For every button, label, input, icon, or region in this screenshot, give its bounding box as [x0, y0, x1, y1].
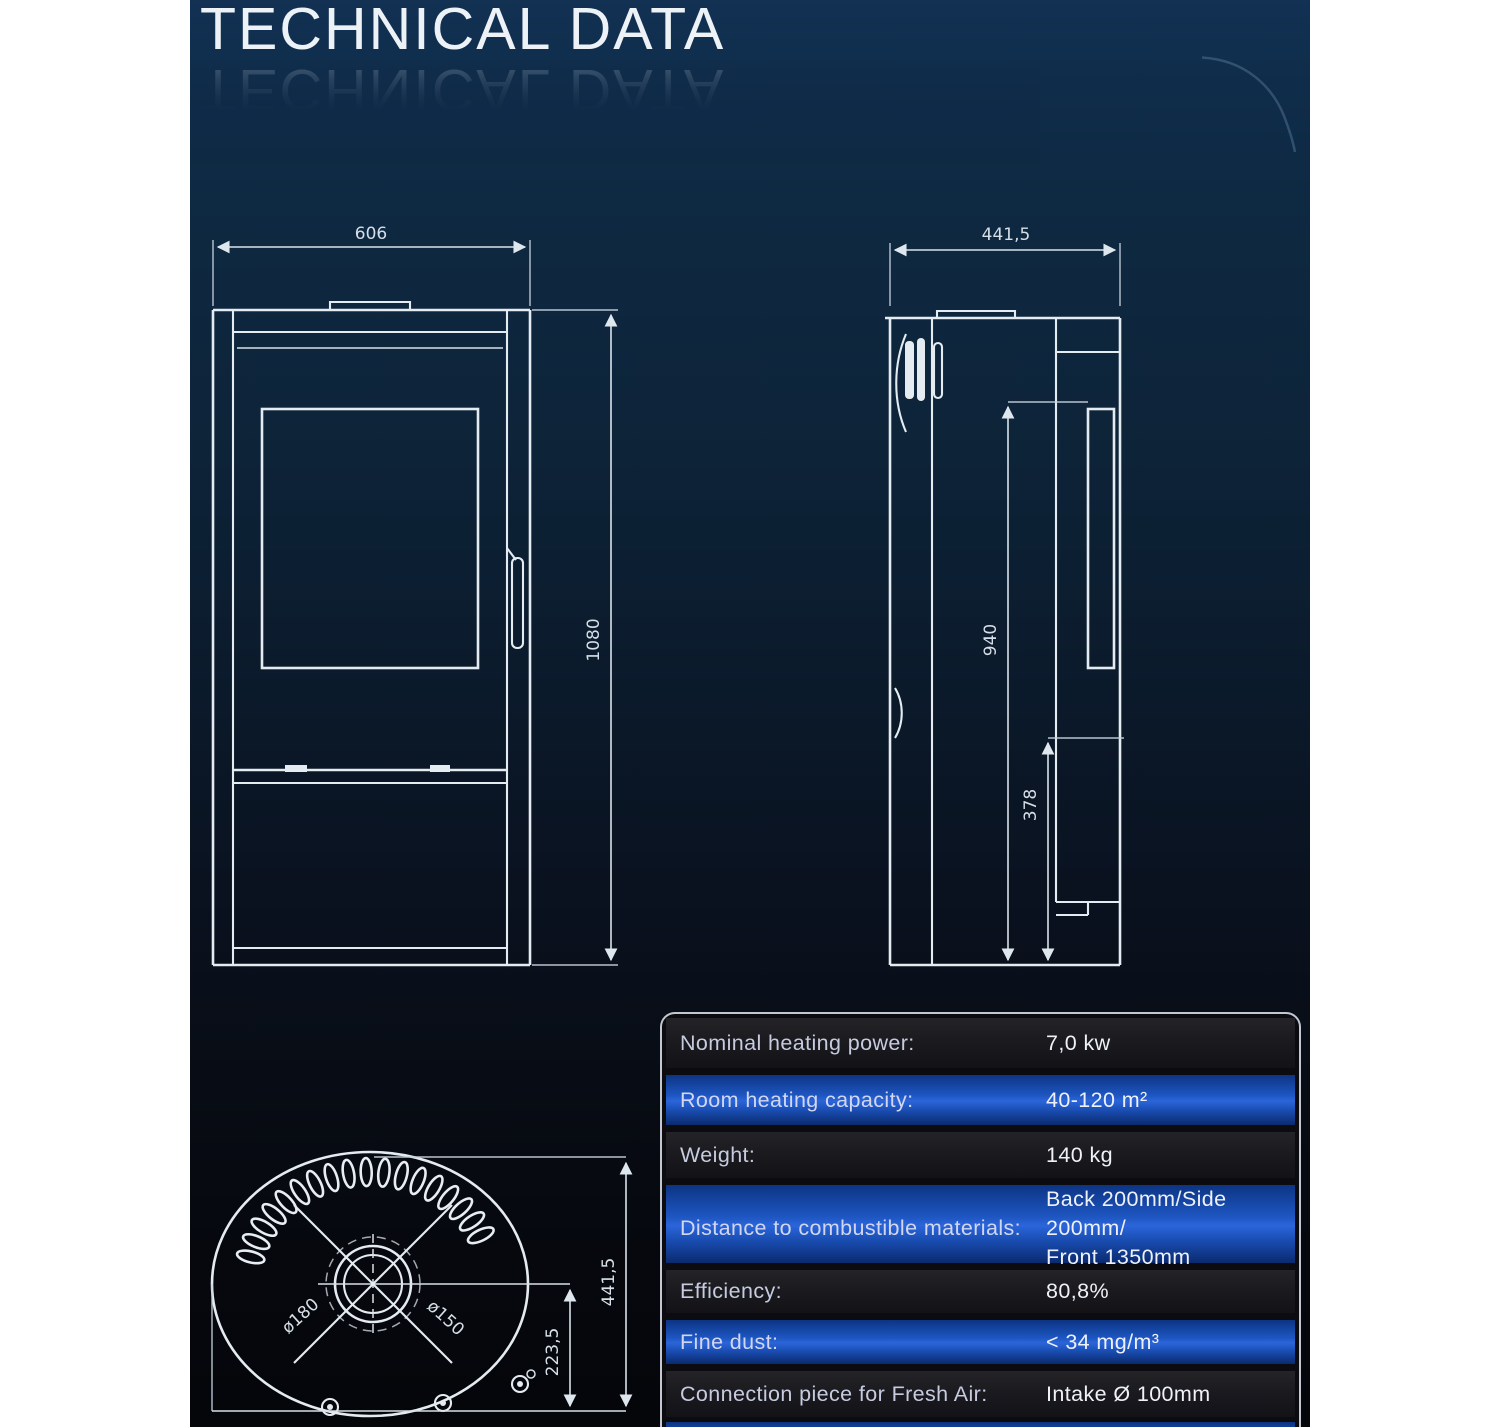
table-row: Weight: 140 kg: [666, 1132, 1295, 1178]
front-width-dimension: 606: [355, 224, 387, 244]
title-reflection-fade: [190, 61, 1040, 165]
side-door-handle-profile: [1088, 409, 1114, 668]
flue-outlet: [294, 1205, 570, 1363]
front-door-glass: [262, 409, 478, 668]
fresh-air-connection: [895, 688, 902, 738]
flue-inner-diameter-label: ø150: [423, 1297, 468, 1341]
spec-label: Distance to combustible materials:: [680, 1216, 1046, 1241]
table-row: Connection piece for Fresh Air: Intake Ø…: [666, 1371, 1295, 1417]
flue-damper-louvers: [896, 334, 942, 432]
table-row: Fine dust: < 34 mg/m³: [666, 1320, 1295, 1364]
top-view-drawing: ø180 ø150 223,5 441,5: [212, 1152, 626, 1416]
curved-accent-line: [1202, 58, 1295, 153]
side-depth-dimension: 441,5: [982, 225, 1031, 245]
front-lip-tab-right: [430, 765, 450, 772]
spec-label: Efficiency:: [680, 1279, 1046, 1304]
spec-value: 40-120 m²: [1046, 1086, 1295, 1115]
spec-value: 80,8%: [1046, 1277, 1295, 1306]
front-door-handle: [507, 548, 523, 648]
front-height-dimension: 1080: [584, 618, 604, 661]
spec-value: Back 200mm/Side 200mm/ Front 1350mm: [1046, 1185, 1295, 1272]
spec-value: 140 kg: [1046, 1141, 1295, 1170]
mounting-holes: [322, 1370, 535, 1415]
table-row: Room heating capacity: 40-120 m²: [666, 1075, 1295, 1125]
sheet-content: 606: [190, 0, 1310, 1427]
spec-label: Connection piece for Fresh Air:: [680, 1382, 1046, 1407]
spec-label: Weight:: [680, 1143, 1046, 1168]
side-view-drawing: 441,5: [885, 225, 1124, 965]
spec-value: 7,0 kw: [1046, 1029, 1295, 1058]
side-flue-height-dimension: 940: [981, 624, 1001, 656]
top-depth-dimension: 441,5: [599, 1258, 619, 1307]
table-row: Distance to combustible materials: Back …: [666, 1185, 1295, 1263]
table-row-cutoff: [666, 1422, 1295, 1427]
spec-value-line2: Front 1350mm: [1046, 1243, 1295, 1272]
spec-label: Nominal heating power:: [680, 1031, 1046, 1056]
front-view-drawing: 606: [213, 224, 618, 965]
spec-table: Nominal heating power: 7,0 kw Room heati…: [660, 1012, 1301, 1427]
table-row: Nominal heating power: 7,0 kw: [666, 1018, 1295, 1068]
spec-value: Intake Ø 100mm: [1046, 1380, 1295, 1409]
spec-label: Room heating capacity:: [680, 1088, 1046, 1113]
technical-data-sheet: 606: [0, 0, 1500, 1427]
table-row: Efficiency: 80,8%: [666, 1270, 1295, 1313]
page-title: TECHNICAL DATA: [200, 0, 725, 58]
side-intake-height-dimension: 378: [1021, 789, 1041, 821]
spec-label: Fine dust:: [680, 1330, 1046, 1355]
flue-outer-diameter-label: ø180: [278, 1295, 323, 1339]
spec-value-line1: Back 200mm/Side 200mm/: [1046, 1185, 1295, 1243]
spec-value: < 34 mg/m³: [1046, 1328, 1295, 1357]
flue-offset-dimension: 223,5: [543, 1328, 563, 1377]
front-lip-tab-left: [285, 765, 307, 772]
